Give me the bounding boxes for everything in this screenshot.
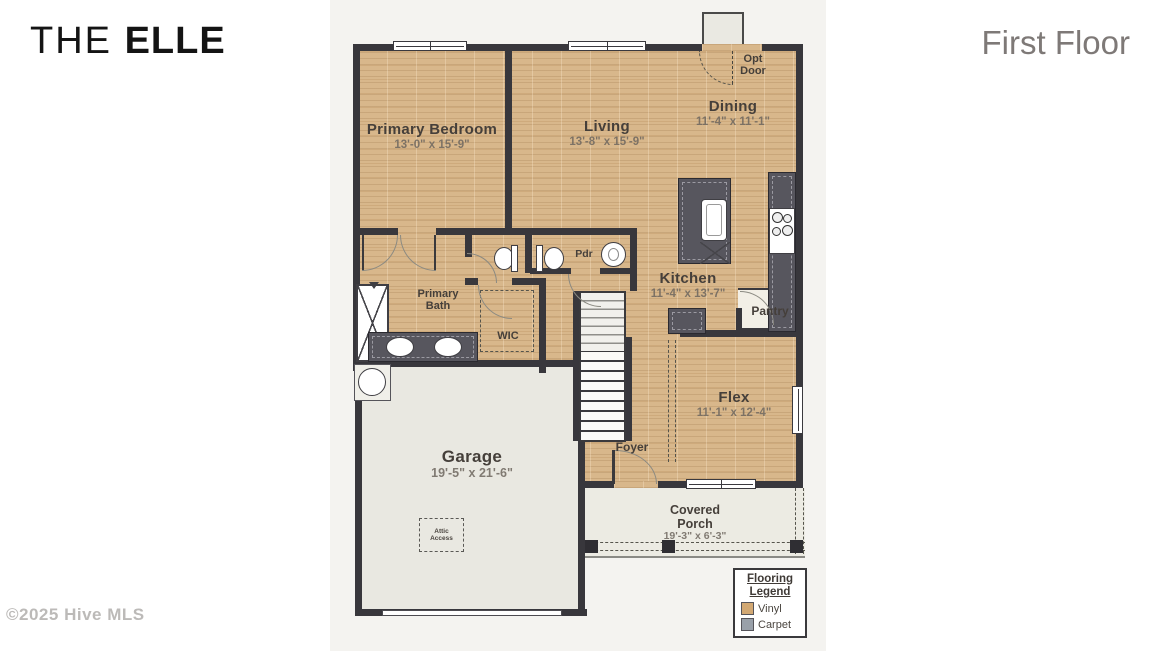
sink-basin [608,248,619,261]
window-sash [430,42,431,50]
burner-icon [772,212,783,223]
garage-door [382,610,562,616]
room-label-dining: Dining 11'-4" x 11'-1" [696,99,770,129]
wall-powder-bottom-b [600,268,637,274]
legend-title-line: Flooring [735,573,805,586]
wall-stairs-right [626,337,632,441]
sink-symbol [386,337,414,357]
stove-symbol [769,208,795,254]
window-flex-bottom [686,479,756,489]
porch-post [585,540,598,553]
title-main: ELLE [125,20,226,62]
flooring-legend: Flooring Legend Vinyl Carpet [733,568,807,638]
legend-item-label: Carpet [758,619,791,631]
room-label-primary-bedroom: Primary Bedroom 13'-0" x 15'-9" [367,122,497,152]
legend-item-vinyl: Vinyl [741,602,805,615]
floor-label: First Floor [950,24,1130,62]
burner-icon [782,225,793,236]
vinyl-swatch [741,602,754,615]
showerhead-icon [369,282,379,289]
burner-icon [783,214,792,223]
toilet-tank [536,245,543,272]
carpet-swatch [741,618,754,631]
sink-symbol [434,337,462,357]
wall-bedroom-bottom-a [353,228,398,235]
room-label-covered-porch: Covered Porch 19'-3" x 6'-3" [664,503,727,543]
room-label-wic: WIC [497,330,518,342]
wall-garage-left [355,366,362,616]
room-label-flex: Flex 11'-1" x 12'-4" [697,390,772,420]
legend-item-carpet: Carpet [741,618,805,631]
toilet-symbol [544,247,564,270]
room-label-pdr: Pdr [575,249,593,261]
stair-treads-lower [581,351,624,440]
title-prefix: THE [30,20,125,62]
flex-opening-dash [668,340,669,462]
wall-bottom-flex-b [756,481,803,488]
wall-bedroom-divider [505,48,512,232]
sink-basin [706,204,722,236]
attic-access-label: Access [430,535,453,542]
room-label-opt-door: Opt Door [740,53,766,78]
room-label-foyer: Foyer [616,441,649,454]
room-label-primary-bath: Primary Bath [418,288,459,313]
window-bedroom [393,41,467,51]
garage-floor [360,365,580,613]
porch-edge-dash [585,550,805,551]
stairs [579,291,626,442]
window-sash [607,42,608,50]
stoop [702,12,744,48]
room-label-kitchen: Kitchen 11'-4" x 13'-7" [651,271,726,301]
island-sink-symbol [701,199,727,241]
room-label-living: Living 13'-8" x 15'-9" [569,119,644,149]
legend-item-label: Vinyl [758,603,782,615]
window-living [568,41,646,51]
toilet-tank [511,245,518,272]
pedestal-sink-symbol [601,242,626,267]
page-title: THE ELLE [30,20,226,63]
copyright-watermark: ©2025 Hive MLS [6,605,145,625]
dishwasher-symbol [700,242,730,264]
kitchen-counter-low [668,308,706,334]
opt-door-opening [702,44,762,51]
wall-powder-right [630,235,637,291]
attic-access-label: Attic [434,528,448,535]
attic-access-box: Attic Access [419,518,464,552]
legend-title-line: Legend [735,586,805,599]
burner-icon [772,227,781,236]
window-sash [721,480,722,488]
legend-title: Flooring Legend [735,573,805,599]
room-label-pantry: Pantry [751,305,788,318]
wall-bottom-flex-a [658,481,686,488]
porch-edge-dash [803,488,804,554]
wall-wic-right [539,278,546,373]
floor-plan-page: THE ELLE First Floor [0,0,1150,651]
flex-opening-dash [675,340,676,462]
window-flex-right [792,386,803,434]
wall-bottom-foyer [578,481,614,488]
porch-post [790,540,803,553]
water-heater-symbol [358,368,386,396]
room-label-garage: Garage 19'-5" x 21'-6" [431,447,513,480]
water-heater-box [354,364,391,401]
